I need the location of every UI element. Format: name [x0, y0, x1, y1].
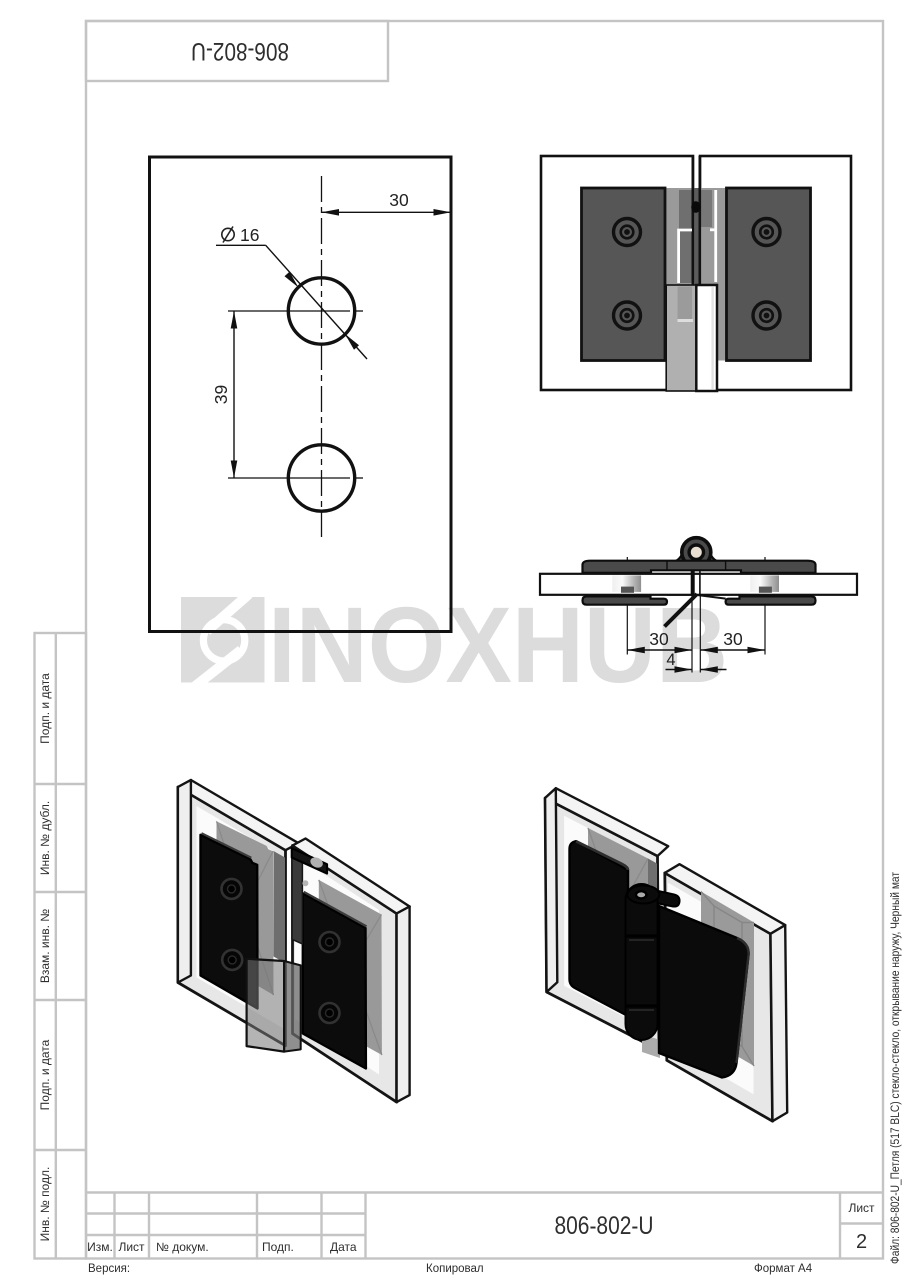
svg-text:Версия:: Версия:	[88, 1263, 130, 1275]
svg-text:4: 4	[666, 651, 675, 669]
svg-text:806-802-U: 806-802-U	[191, 37, 289, 65]
svg-text:Взам. инв. №: Взам. инв. №	[38, 909, 52, 983]
svg-text:Подп. и дата: Подп. и дата	[38, 1039, 52, 1110]
svg-text:Подп.: Подп.	[262, 1240, 294, 1254]
svg-text:№ докум.: № докум.	[156, 1240, 209, 1254]
svg-text:2: 2	[856, 1231, 867, 1253]
svg-text:Формат A4: Формат A4	[754, 1263, 813, 1275]
svg-text:Дата: Дата	[330, 1240, 357, 1254]
svg-text:30: 30	[723, 629, 743, 649]
svg-text:39: 39	[211, 385, 231, 404]
svg-text:Изм.: Изм.	[87, 1240, 113, 1254]
svg-text:Файл: 806-802-U_Петля (517 BLC: Файл: 806-802-U_Петля (517 BLC) стекло-с…	[890, 871, 902, 1264]
svg-text:30: 30	[649, 629, 669, 649]
svg-text:Подп. и дата: Подп. и дата	[38, 673, 52, 744]
svg-text:Лист: Лист	[118, 1240, 145, 1254]
svg-text:30: 30	[389, 190, 409, 210]
svg-text:Лист: Лист	[848, 1201, 875, 1215]
svg-text:16: 16	[240, 225, 259, 245]
svg-text:Копировал: Копировал	[426, 1263, 484, 1275]
svg-text:Инв. № подл.: Инв. № подл.	[38, 1167, 52, 1242]
svg-text:Инв. № дубл.: Инв. № дубл.	[38, 801, 52, 875]
svg-text:806-802-U: 806-802-U	[555, 1212, 654, 1240]
